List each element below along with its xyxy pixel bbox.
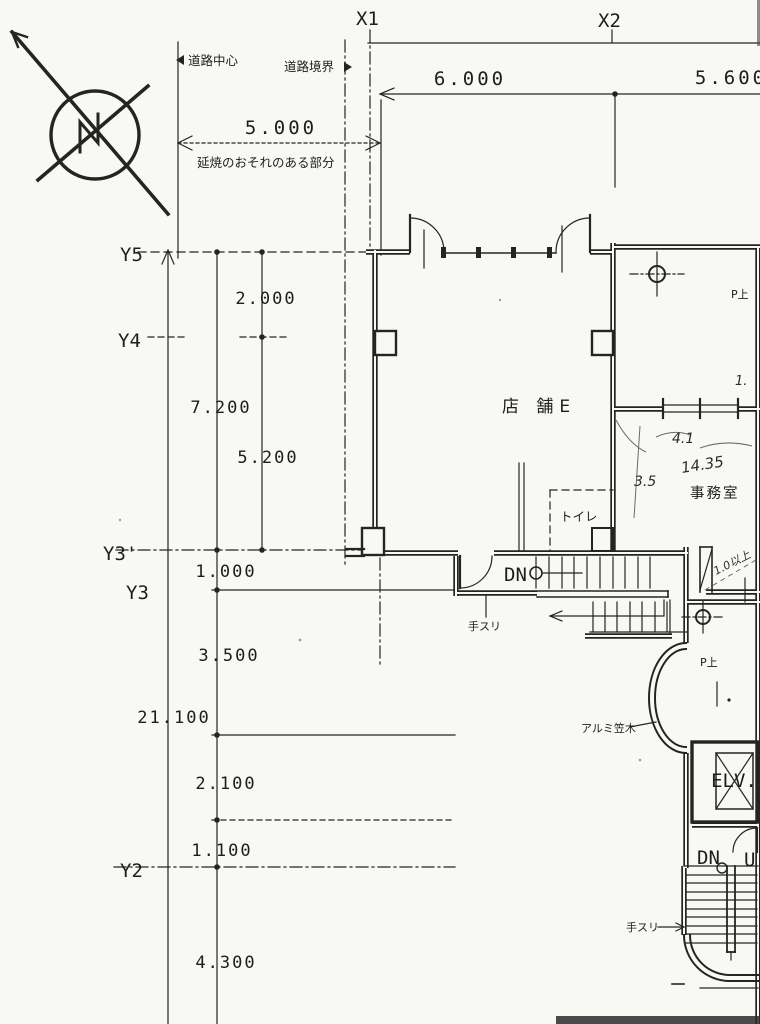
left-triangle-icon xyxy=(176,55,184,65)
dim-left-2: 5.200 xyxy=(237,448,298,468)
dim-left-0: 2.000 xyxy=(235,289,296,309)
dim-left-6: 2.100 xyxy=(195,774,256,794)
road-center-label: 道路中心 xyxy=(188,53,239,68)
grid-label-y3: Y3 xyxy=(126,582,149,604)
scan-artifacts xyxy=(119,0,760,1024)
road-center-label-group: 道路中心 xyxy=(176,53,239,68)
handrail-label-2: 手スリ xyxy=(626,920,659,934)
dim-fire-offset: 5.000 xyxy=(245,117,317,139)
dn-label-1: DN xyxy=(504,564,527,586)
hall-door xyxy=(460,556,492,588)
hand-note-office-width: 4.1 xyxy=(672,431,694,447)
fire-spread-dimension: 5.000 延焼のおそれのある部分 xyxy=(178,117,380,170)
handrail-label-1: 手スリ xyxy=(468,619,501,633)
dim-left-1: 7.200 xyxy=(190,398,251,418)
road-boundary-label-group: 道路境界 xyxy=(284,59,352,74)
north-arrow xyxy=(12,32,168,214)
grid-label-y4: Y4 xyxy=(118,330,141,352)
pipe-up-label-2: P上 xyxy=(700,656,718,669)
storefront xyxy=(410,215,590,272)
dim-bay-x1-x2: 6.000 xyxy=(434,68,506,90)
room-label-office: 事務室 xyxy=(690,485,740,502)
grid-label-x1: X1 xyxy=(356,8,379,30)
pipe-up-label-1: P上 xyxy=(731,288,749,301)
column-symbol-1 xyxy=(630,252,684,296)
floor-plan-sheet: 道路中心 道路境界 6.000 5.600 5.000 延焼のおそれのある部分 … xyxy=(0,0,760,1024)
top-dimension-chain: 6.000 5.600 xyxy=(380,67,760,187)
dim-bay-x2-x3: 5.600 xyxy=(695,67,760,89)
dim-left-7: 1.100 xyxy=(191,841,252,861)
grid-label-y5: Y5 xyxy=(120,244,143,266)
elevator-label: ELV. xyxy=(711,770,757,792)
left-dimension-column xyxy=(114,249,455,1024)
grid-label-y3-dash: Y3' xyxy=(103,543,137,565)
office-window xyxy=(663,399,738,418)
dim-left-4: 3.500 xyxy=(198,646,259,666)
hand-note-edge-dim: 1. xyxy=(735,374,747,389)
room-label-toilet: トイレ xyxy=(560,509,598,524)
hand-note-clearance: 1.0以上 xyxy=(711,548,753,578)
toilet-room xyxy=(519,463,613,551)
door-swing-left xyxy=(410,218,444,252)
curved-bay-wall xyxy=(649,643,686,753)
road-boundary-label: 道路境界 xyxy=(284,59,335,74)
fire-spread-label: 延焼のおそれのある部分 xyxy=(197,155,335,170)
dn-label-2: DN xyxy=(697,847,720,869)
dim-left-3: 1.000 xyxy=(195,562,256,582)
right-triangle-icon xyxy=(344,62,352,72)
hand-note-office-area: 14.35 xyxy=(680,452,725,476)
room-label-shop: 店 舗E xyxy=(502,397,576,417)
building-walls xyxy=(346,243,760,1024)
door-swing-right xyxy=(556,218,590,252)
dim-left-5: 21.100 xyxy=(137,708,210,728)
up-label: U xyxy=(744,849,755,871)
grid-label-x2: X2 xyxy=(598,10,621,32)
main-stair xyxy=(536,557,688,634)
dim-left-8: 4.300 xyxy=(195,953,256,973)
grid-label-y2: Y2 xyxy=(120,860,143,882)
hand-note-office-depth: 3.5 xyxy=(634,474,656,490)
aluminum-coping-label: アルミ笠木 xyxy=(581,721,636,735)
